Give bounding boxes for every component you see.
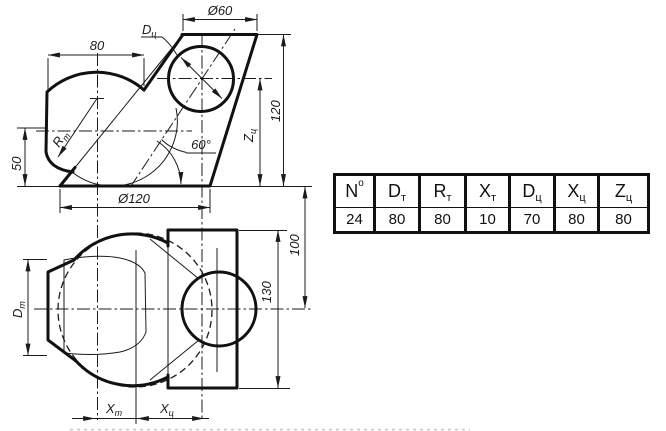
dim-label-rt: Rт	[49, 127, 73, 151]
table-value-rt: 80	[418, 207, 464, 231]
plate-edge-thick-upper	[144, 35, 183, 91]
plate-edge-thin-line	[60, 35, 183, 187]
dim-label-dia60: Ø60	[207, 3, 233, 18]
table-header-dc: Dц	[508, 176, 553, 207]
table-header-dt: Dт	[373, 176, 418, 207]
table-header-n: No	[336, 176, 373, 207]
dim-label-angle: 60°	[191, 137, 211, 152]
parameter-table: No Dт Rт Xт Dц Xц Zц 24 80 80 10 70 80 8…	[333, 173, 650, 234]
torus-equator-thin-arc	[72, 108, 177, 186]
dimension-labels: Ø60 80 Dц 120 Zц 50 Rт 60° Ø120 100 130 …	[9, 3, 302, 418]
torus-silhouette-arc	[46, 72, 144, 172]
table-value-zc: 80	[597, 207, 647, 231]
thin-lines	[17, 14, 312, 424]
torus-front-top-arc	[74, 234, 168, 260]
torus-front-bottom-arc	[76, 361, 168, 386]
dim-label-100: 100	[287, 234, 302, 256]
table-header-xc: Xц	[553, 176, 597, 207]
table-value-dt: 80	[373, 207, 418, 231]
hidden-lines	[58, 233, 212, 387]
hidden-torus-circle	[58, 233, 212, 387]
angle-arc	[157, 141, 181, 184]
dim-label-zc: Zц	[241, 129, 258, 143]
dim-label-xt: Xт	[105, 401, 123, 418]
table-value-xt: 10	[464, 207, 508, 231]
dim-label-120: 120	[268, 100, 283, 122]
dim80-extension-lines	[48, 58, 144, 90]
drawing-sheet: Ø60 80 Dц 120 Zц 50 Rт 60° Ø120 100 130 …	[0, 0, 666, 431]
dim-label-dt: Dт	[10, 301, 27, 318]
table-header-zc: Zц	[597, 176, 647, 207]
torus-front-flat-chamfer	[48, 260, 76, 361]
visible-outlines	[46, 35, 257, 389]
dim-label-80: 80	[90, 38, 105, 53]
table-value-xc: 80	[553, 207, 597, 231]
table-value-n: 24	[336, 207, 373, 231]
dim-label-xc: Xц	[159, 401, 174, 418]
dim-label-dc: Dц	[142, 22, 157, 39]
dim-label-dia120: Ø120	[117, 191, 151, 206]
table-header-rt: Rт	[418, 176, 464, 207]
dim-label-130: 130	[259, 281, 274, 303]
table-value-dc: 70	[508, 207, 553, 231]
table-header-xt: Xт	[464, 176, 508, 207]
dim-label-50: 50	[9, 156, 24, 171]
plate-projection-outline	[64, 256, 146, 354]
